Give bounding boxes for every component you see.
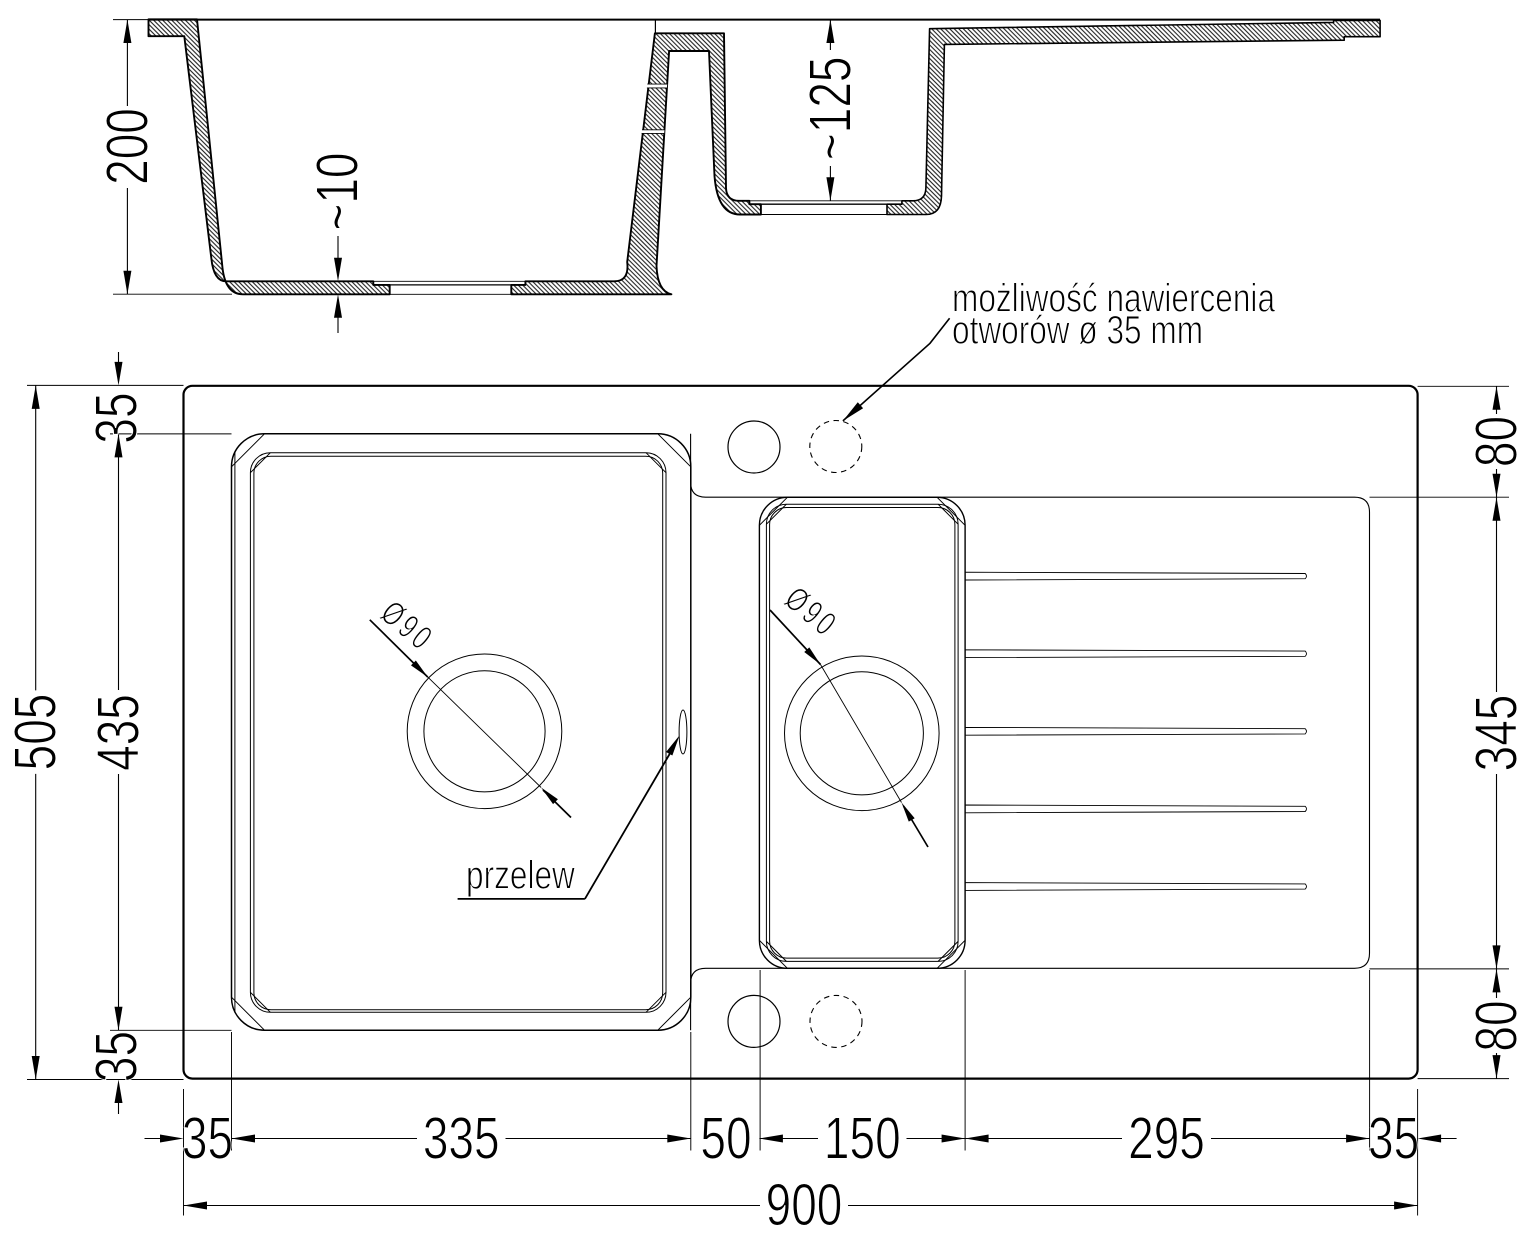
svg-text:35: 35	[84, 1031, 150, 1082]
svg-text:otworów ø 35 mm: otworów ø 35 mm	[952, 307, 1203, 352]
svg-text:50: 50	[700, 1106, 751, 1172]
svg-text:~10: ~10	[305, 152, 371, 230]
svg-text:35: 35	[1368, 1106, 1419, 1172]
svg-text:80: 80	[1464, 416, 1530, 467]
svg-text:295: 295	[1128, 1106, 1205, 1172]
svg-text:przelew: przelew	[466, 852, 576, 897]
svg-text:~125: ~125	[798, 56, 864, 160]
svg-text:900: 900	[766, 1173, 843, 1239]
svg-text:80: 80	[1464, 1000, 1530, 1051]
svg-text:200: 200	[95, 108, 161, 185]
svg-text:35: 35	[182, 1106, 233, 1172]
svg-text:335: 335	[423, 1106, 500, 1172]
svg-text:150: 150	[824, 1106, 901, 1172]
svg-text:505: 505	[3, 694, 69, 771]
svg-text:345: 345	[1464, 695, 1530, 772]
svg-text:35: 35	[84, 392, 150, 443]
svg-text:435: 435	[86, 694, 152, 771]
